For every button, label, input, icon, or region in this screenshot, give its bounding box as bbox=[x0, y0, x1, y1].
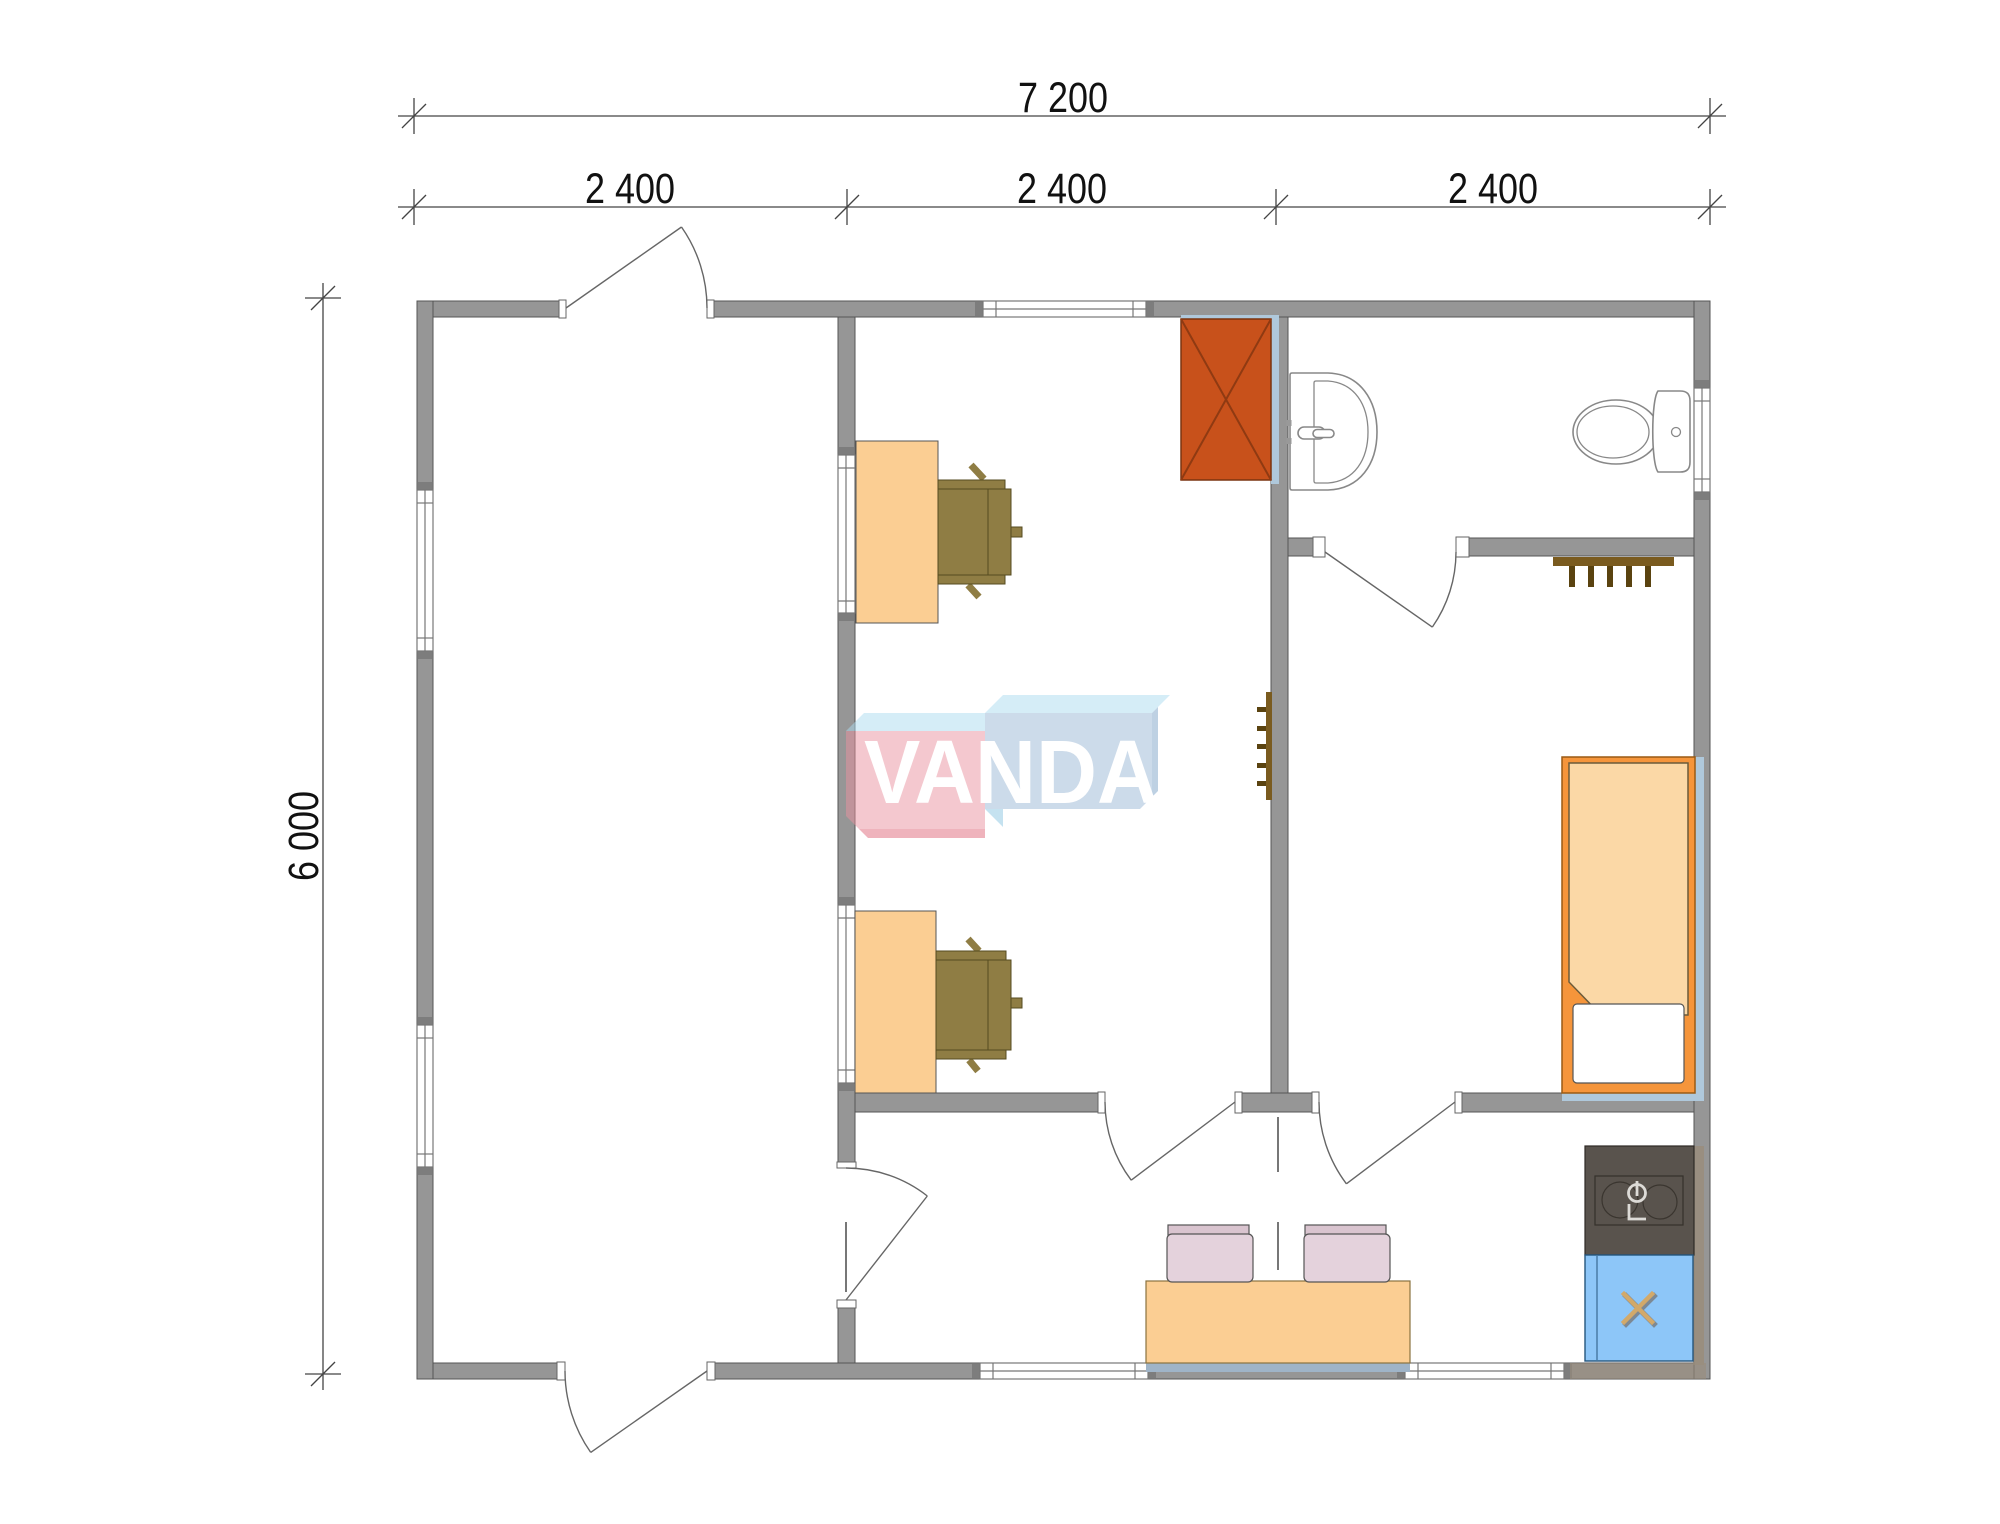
svg-text:7 200: 7 200 bbox=[1018, 74, 1108, 122]
svg-text:2 400: 2 400 bbox=[1448, 165, 1538, 213]
svg-text:2 400: 2 400 bbox=[1017, 165, 1107, 213]
svg-text:6 000: 6 000 bbox=[280, 791, 328, 881]
svg-text:2 400: 2 400 bbox=[585, 165, 675, 213]
svg-text:VANDA: VANDA bbox=[864, 723, 1158, 823]
